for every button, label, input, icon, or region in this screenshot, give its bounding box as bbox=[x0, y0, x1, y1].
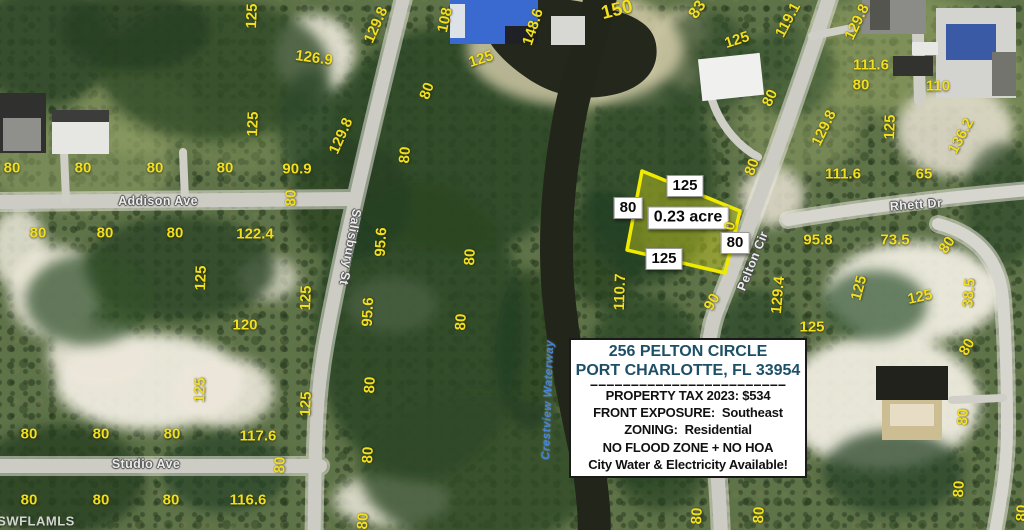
lot-dimension-label: 117.6 bbox=[240, 429, 277, 444]
map-annotations: Addison AveSalisbury StStudio AveRhett D… bbox=[0, 0, 1024, 530]
lot-dimension-label: 122.4 bbox=[236, 227, 274, 242]
property-address-line2: PORT CHARLOTTE, FL 33954 bbox=[576, 362, 801, 380]
lot-dimension-label: 80 bbox=[167, 226, 184, 241]
lot-dimension-label: 129.8 bbox=[362, 5, 391, 45]
lot-dimension-label: 80 bbox=[689, 507, 705, 524]
lot-dimension-label: 95.8 bbox=[803, 233, 832, 248]
lot-dimension-label: 65 bbox=[916, 167, 933, 182]
zoning-line: ZONING: Residential bbox=[624, 422, 751, 438]
lot-dimension-label: 111.6 bbox=[853, 58, 889, 73]
lot-dimension-label: 125 bbox=[193, 265, 209, 291]
lot-dimension-label: 125 bbox=[467, 48, 495, 70]
parcel-area-label: 0.23 acre bbox=[648, 207, 729, 230]
lot-dimension-label: 80 bbox=[21, 493, 38, 508]
lot-dimension-label: 80 bbox=[397, 146, 413, 164]
lot-dimension-label: 80 bbox=[751, 506, 767, 523]
lot-dimension-label: 80 bbox=[75, 161, 92, 176]
lot-dimension-label: 80 bbox=[1014, 504, 1024, 521]
lot-dimension-label: 125 bbox=[244, 3, 260, 29]
lot-dimension-label: 90.9 bbox=[282, 162, 311, 177]
lot-dimension-label: 80 bbox=[956, 336, 977, 358]
waterway-label: Crestview Waterway bbox=[541, 340, 557, 460]
info-divider: ======================== bbox=[590, 382, 786, 387]
lot-dimension-label: 129.4 bbox=[769, 276, 787, 315]
lot-dimension-label: 80 bbox=[362, 376, 378, 393]
street-label-addison-ave: Addison Ave bbox=[118, 195, 198, 208]
lot-dimension-label: 150 bbox=[599, 0, 634, 23]
utilities-line: City Water & Electricity Available! bbox=[588, 457, 788, 473]
lot-dimension-label: 125 bbox=[723, 29, 751, 51]
lot-dimension-label: 129.8 bbox=[809, 108, 839, 148]
property-address-line1: 256 PELTON CIRCLE bbox=[609, 343, 768, 361]
lot-dimension-label: 80 bbox=[97, 226, 114, 241]
lot-dimension-label: 80 bbox=[93, 427, 110, 442]
lot-dimension-label: 80 bbox=[21, 427, 38, 442]
parcel-frontage-label: 125 bbox=[666, 175, 703, 197]
flood-hoa-line: NO FLOOD ZONE + NO HOA bbox=[603, 440, 774, 456]
watermark: SWFLAMLS bbox=[0, 515, 75, 528]
parcel-side-left-label: 80 bbox=[614, 197, 643, 219]
lot-dimension-label: 129.8 bbox=[327, 116, 356, 156]
lot-dimension-label: 90 bbox=[701, 291, 722, 313]
lot-dimension-label: 80 bbox=[272, 456, 288, 473]
lot-dimension-label: 80 bbox=[163, 493, 180, 508]
lot-dimension-label: 126.9 bbox=[294, 48, 333, 68]
lot-dimension-label: 80 bbox=[955, 408, 971, 425]
parcel-rear-label: 125 bbox=[645, 248, 682, 270]
lot-dimension-label: 73.5 bbox=[880, 233, 909, 248]
property-info-box: 256 PELTON CIRCLE PORT CHARLOTTE, FL 339… bbox=[569, 338, 807, 478]
lot-dimension-label: 80 bbox=[147, 161, 164, 176]
street-label-rhett-dr: Rhett Dr bbox=[889, 197, 942, 213]
aerial-listing-map: Addison AveSalisbury StStudio AveRhett D… bbox=[0, 0, 1024, 530]
lot-dimension-label: 83 bbox=[686, 0, 709, 22]
lot-dimension-label: 125 bbox=[882, 114, 898, 140]
lot-dimension-label: 80 bbox=[283, 189, 299, 206]
lot-dimension-label: 125 bbox=[906, 287, 934, 307]
lot-dimension-label: 80 bbox=[30, 226, 47, 241]
street-label-studio-ave: Studio Ave bbox=[112, 458, 180, 471]
lot-dimension-label: 125 bbox=[298, 391, 314, 417]
lot-dimension-label: 0 bbox=[722, 221, 738, 232]
lot-dimension-label: 80 bbox=[164, 427, 181, 442]
lot-dimension-label: 125 bbox=[799, 320, 824, 335]
lot-dimension-label: 125 bbox=[192, 377, 208, 403]
lot-dimension-label: 125 bbox=[245, 111, 261, 137]
lot-dimension-label: 80 bbox=[217, 161, 234, 176]
lot-dimension-label: 80 bbox=[462, 248, 478, 265]
lot-dimension-label: 80 bbox=[742, 157, 762, 178]
lot-dimension-label: 129.8 bbox=[842, 2, 872, 42]
lot-dimension-label: 111.6 bbox=[825, 167, 861, 182]
lot-dimension-label: 80 bbox=[360, 446, 376, 463]
property-tax-line: PROPERTY TAX 2023: $534 bbox=[606, 388, 771, 404]
lot-dimension-label: 80 bbox=[417, 81, 437, 102]
lot-dimension-label: 125 bbox=[298, 285, 314, 311]
lot-dimension-label: 80 bbox=[853, 78, 870, 93]
lot-dimension-label: 125 bbox=[849, 274, 870, 302]
lot-dimension-label: 80 bbox=[760, 87, 781, 108]
lot-dimension-label: 80 bbox=[355, 512, 371, 529]
front-exposure-line: FRONT EXPOSURE: Southeast bbox=[593, 405, 783, 421]
street-label-salisbury-st: Salisbury St bbox=[337, 208, 363, 286]
lot-dimension-label: 148.6 bbox=[520, 7, 546, 47]
lot-dimension-label: 80 bbox=[936, 234, 958, 256]
lot-dimension-label: 95.6 bbox=[360, 297, 377, 327]
lot-dimension-label: 95.6 bbox=[373, 227, 390, 257]
lot-dimension-label: 80 bbox=[453, 313, 469, 330]
lot-dimension-label: 110 bbox=[926, 79, 950, 94]
lot-dimension-label: 80 bbox=[4, 161, 21, 176]
lot-dimension-label: 108 bbox=[435, 6, 455, 34]
lot-dimension-label: 80 bbox=[93, 493, 110, 508]
parcel-side-right-label: 80 bbox=[721, 232, 750, 254]
lot-dimension-label: 110.7 bbox=[612, 273, 628, 310]
lot-dimension-label: 120 bbox=[232, 318, 257, 333]
lot-dimension-label: 80 bbox=[951, 480, 967, 497]
lot-dimension-label: 119.1 bbox=[773, 0, 803, 39]
lot-dimension-label: 38.5 bbox=[960, 278, 977, 308]
lot-dimension-label: 136.2 bbox=[946, 116, 977, 156]
lot-dimension-label: 116.6 bbox=[230, 493, 267, 508]
